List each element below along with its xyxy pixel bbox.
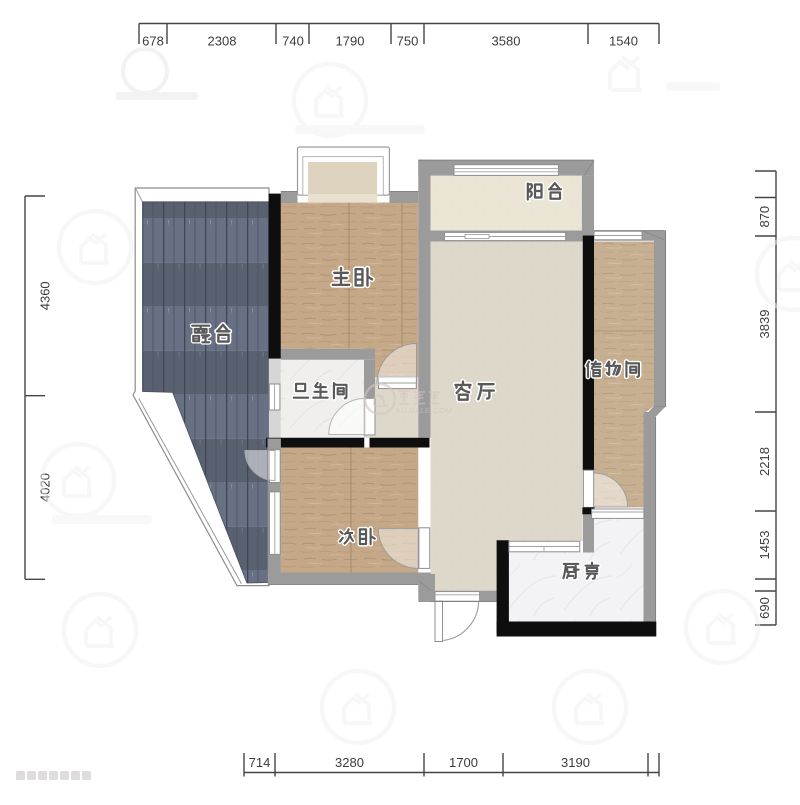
svg-text:750: 750 — [397, 34, 419, 49]
svg-text:870: 870 — [757, 206, 772, 228]
svg-text:4360: 4360 — [38, 281, 53, 310]
svg-text:3580: 3580 — [492, 34, 521, 49]
svg-text:2308: 2308 — [208, 34, 237, 49]
svg-text:1540: 1540 — [609, 34, 638, 49]
svg-text:690: 690 — [757, 597, 772, 619]
svg-text:3190: 3190 — [561, 755, 590, 770]
svg-text:2218: 2218 — [757, 447, 772, 476]
svg-text:678: 678 — [142, 34, 164, 49]
svg-text:1453: 1453 — [757, 531, 772, 560]
svg-text:3839: 3839 — [757, 310, 772, 339]
svg-text:740: 740 — [282, 34, 304, 49]
svg-text:714: 714 — [249, 755, 271, 770]
svg-text:1700: 1700 — [449, 755, 478, 770]
svg-text:KUJIALE.COM: KUJIALE.COM — [396, 406, 453, 415]
svg-text:3280: 3280 — [335, 755, 364, 770]
svg-text:1790: 1790 — [336, 34, 365, 49]
